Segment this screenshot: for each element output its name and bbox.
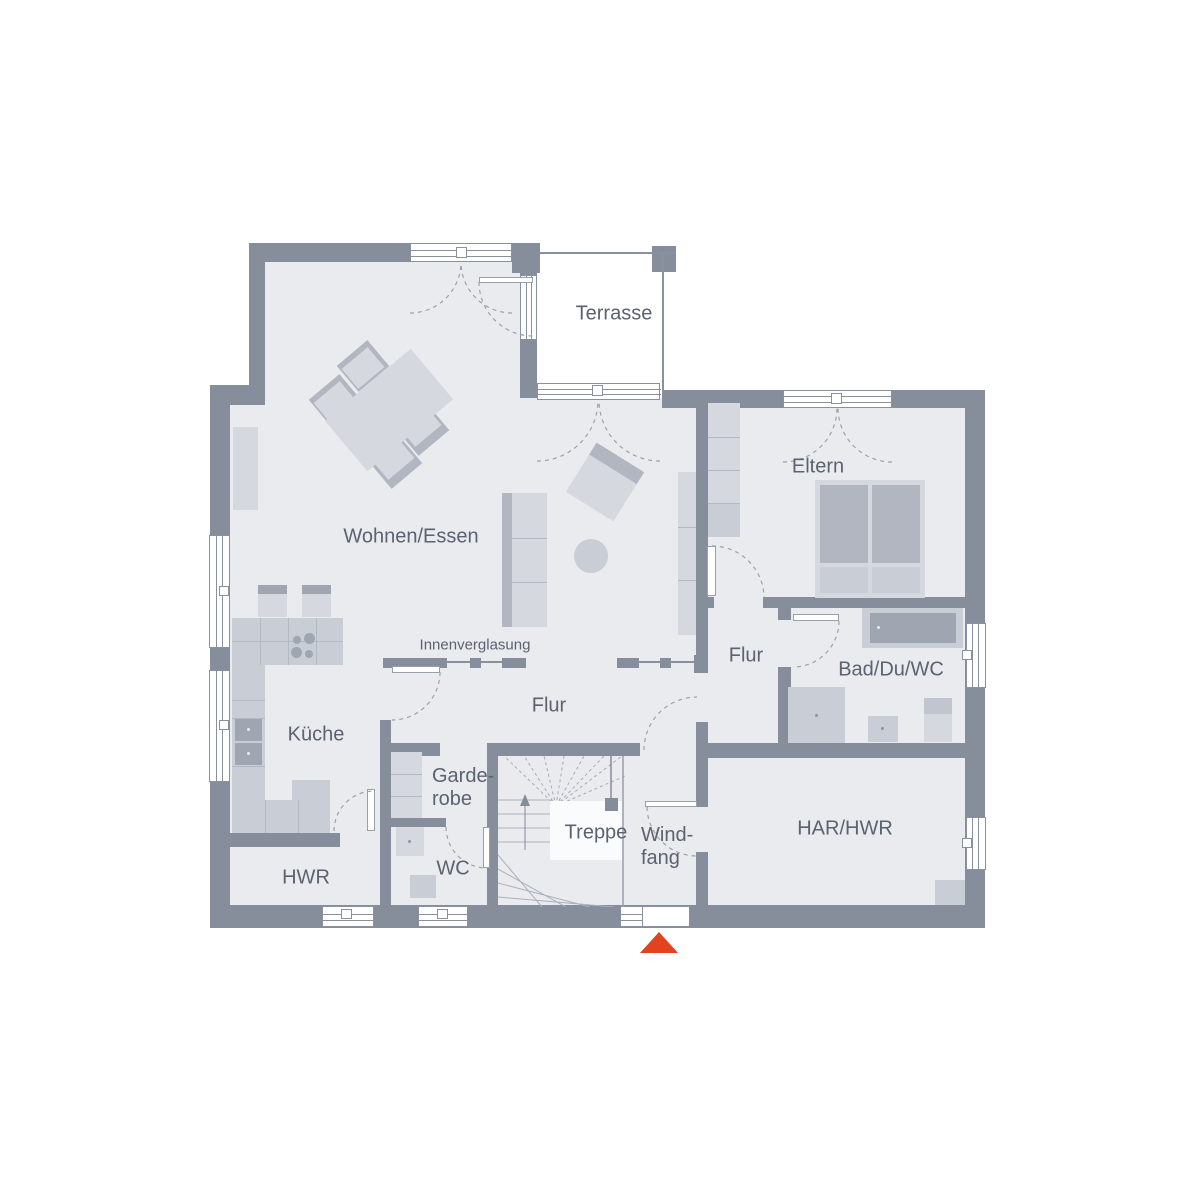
sideboard (233, 427, 258, 510)
sofa-cushion-line (512, 538, 547, 539)
tv-board-line (678, 580, 696, 581)
tv-board-line (678, 527, 696, 528)
counter-line (288, 618, 289, 665)
toilet-wc (410, 875, 436, 898)
wall-innenverglasung-post2 (660, 658, 671, 668)
wall-living-wing-c (696, 722, 708, 807)
stove-burner (291, 647, 302, 658)
wardrobe-garderobe (391, 752, 422, 818)
wall-eltern-bottom (763, 597, 965, 608)
room-label-treppe: Treppe (565, 822, 628, 845)
door-leaf-bad (793, 614, 839, 621)
entrance-arrow (640, 932, 678, 953)
window-marker (219, 720, 229, 730)
kitchen-peninsula (232, 800, 330, 833)
wall-innenverglasung-block2 (502, 658, 526, 668)
peninsula-line (298, 800, 299, 833)
glass-pane-4 (671, 661, 694, 663)
room-label-wc: WC (436, 858, 469, 881)
bathtub-inner (870, 613, 956, 643)
wall-har-top (708, 743, 965, 758)
room-label-garderobe: Garde- robe (432, 765, 494, 811)
toilet-bad (924, 714, 952, 742)
bed-mattress (820, 485, 868, 563)
room-label-har-hwr: HAR/HWR (797, 818, 893, 841)
toilet-tank-bad (924, 698, 952, 714)
wardrobe-line (391, 774, 422, 775)
wall-bad-left-a (778, 608, 791, 620)
wall-wc-top (391, 818, 446, 827)
stove-burner (305, 650, 313, 658)
terrace-edge-top (537, 252, 676, 254)
terrace-side-window (520, 275, 537, 340)
wall-living-wing-d (696, 852, 708, 907)
unit-line (232, 766, 265, 767)
counter-line (316, 618, 317, 665)
room-label-hwr: HWR (282, 867, 330, 890)
wardrobe-line (391, 796, 422, 797)
wall-innenverglasung-block3 (617, 658, 639, 668)
door-leaf-kueche (392, 666, 440, 673)
door-leaf-wc (483, 827, 490, 868)
bed-foot (872, 567, 920, 593)
room-label-terrasse: Terrasse (576, 303, 653, 326)
appliance-dot (247, 752, 250, 755)
glass-pane-1 (447, 661, 470, 663)
shower-drain (815, 714, 818, 717)
peninsula-line (265, 800, 266, 833)
har-equipment (935, 880, 965, 905)
room-label-windfang: Wind- fang (641, 824, 693, 870)
wardrobe-line (708, 437, 740, 438)
window-marker (219, 586, 229, 596)
window-marker (456, 247, 467, 258)
door-leaf-eltern (707, 546, 716, 596)
sink-drain (881, 727, 884, 730)
bar-stool-back (302, 585, 331, 594)
room-label-flur-rechts: Flur (729, 645, 763, 668)
wardrobe-eltern-lower (708, 503, 740, 537)
wall-living-wing-cap (696, 597, 714, 608)
floor-plan: Wohnen/Essen Terrasse Eltern Flur Bad/Du… (0, 0, 1200, 1200)
room-label-eltern: Eltern (792, 456, 844, 479)
sink-drain (408, 840, 411, 843)
wall-hwr-top (210, 833, 340, 847)
door-leaf-hwr (367, 789, 375, 831)
counter-line (260, 618, 261, 665)
window-marker (437, 909, 448, 919)
wall-stair-top (487, 743, 640, 756)
wall-innenverglasung-corner (694, 655, 708, 673)
window-marker (962, 650, 972, 660)
room-label-wohnen-essen: Wohnen/Essen (343, 526, 478, 549)
appliance-dot (247, 728, 250, 731)
door-leaf-windfang (645, 801, 697, 807)
bathtub-faucet (877, 626, 880, 629)
bed-foot (820, 567, 868, 593)
sofa-seat (512, 493, 547, 627)
sofa-back (502, 493, 512, 627)
room-label-flur-mitte: Flur (532, 695, 566, 718)
coffee-table (574, 539, 608, 573)
bed-mattress (872, 485, 920, 563)
sofa-cushion-line (512, 582, 547, 583)
window-marker (592, 385, 603, 396)
bar-stool-back (258, 585, 287, 594)
annotation-innenverglasung: Innenverglasung (420, 636, 531, 653)
wall-upper-left (249, 243, 265, 405)
window-marker (341, 909, 352, 919)
glass-pane-3 (639, 661, 660, 663)
room-label-kueche: Küche (288, 724, 345, 747)
wall-innenverglasung-post1 (470, 658, 481, 668)
window-marker (962, 838, 972, 848)
wardrobe-line (708, 503, 740, 504)
terrace-pillar-right (652, 246, 676, 272)
wardrobe-line (708, 470, 740, 471)
tv-board (678, 472, 696, 635)
stove-burner (304, 633, 315, 644)
kitchen-peninsula-return (292, 780, 330, 800)
room-label-bad-du-wc: Bad/Du/WC (838, 659, 944, 682)
terrace-edge-right (662, 252, 664, 390)
entrance-door (620, 906, 690, 927)
stove-burner (293, 636, 301, 644)
unit-line (232, 700, 265, 701)
door-leaf-terrace-side (479, 277, 533, 283)
glass-pane-2 (481, 661, 502, 663)
window-marker (831, 393, 842, 404)
